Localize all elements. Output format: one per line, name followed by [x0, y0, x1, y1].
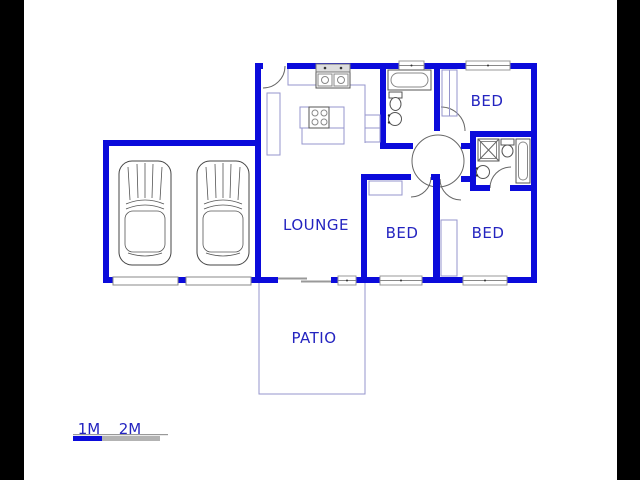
scale-1m-label: 1M [74, 420, 104, 438]
garage-top-wall [103, 140, 261, 146]
ensuite-bottom-wall-left [470, 185, 490, 191]
bed1-label: BED [462, 93, 512, 109]
bed3-closet [441, 220, 457, 276]
toilet-icon [501, 139, 514, 157]
ensuite-top-wall [470, 131, 537, 137]
garage-door-right [186, 277, 251, 285]
left-outer-wall [255, 63, 261, 283]
garage-door-left [113, 277, 178, 285]
bed2-top-wall [361, 174, 411, 180]
bed2-bed3-divider-wall [433, 174, 440, 283]
bed2-door-arc [411, 177, 431, 197]
kitchen-fixtures [267, 64, 380, 155]
car-icon [197, 161, 249, 265]
scale-2m-label: 2M [115, 420, 145, 438]
shower-icon [478, 139, 499, 161]
bath1-bottom-wall [380, 143, 413, 149]
entry-door-arc [263, 66, 285, 88]
kitchen-bath-divider-wall [380, 63, 386, 149]
letterbox-right [617, 0, 640, 480]
bathroom-ensuite-fixtures [476, 139, 530, 183]
bed3-label: BED [463, 225, 513, 241]
bath1-bed1-divider-wall [434, 63, 440, 131]
window-bed1 [466, 61, 510, 70]
bathtub-icon [388, 70, 431, 90]
right-outer-wall [531, 63, 537, 283]
bed2-label: BED [377, 225, 427, 241]
bed1-door-arc [441, 107, 465, 131]
bathtub-icon [516, 139, 530, 183]
basin-icon [476, 166, 490, 179]
lounge-label: LOUNGE [266, 217, 366, 233]
kitchen-cupboard [267, 93, 280, 155]
kitchen-island-extension [302, 128, 344, 144]
ensuite-door-arc [490, 167, 511, 188]
car-icon [119, 161, 171, 265]
kitchen-sink-icon [316, 64, 350, 88]
floorplan-viewer: LOUNGE BED BED BED PATIO 1M 2M [0, 0, 640, 480]
window-lounge [338, 276, 356, 285]
bed2-closet [369, 181, 402, 195]
stove-icon [309, 107, 329, 128]
letterbox-left [0, 0, 24, 480]
ensuite-left-wall [470, 131, 476, 191]
window-bath1 [399, 61, 424, 70]
patio-label: PATIO [289, 330, 339, 346]
ensuite-bottom-wall-right [510, 185, 537, 191]
basin-icon [388, 113, 402, 126]
bathroom-main-fixtures [388, 70, 431, 126]
garage-left-wall [103, 140, 109, 283]
window-bed2 [380, 276, 422, 285]
window-bed3 [463, 276, 507, 285]
bed3-door-arc [440, 179, 461, 200]
floorplan-drawing [0, 0, 640, 480]
toilet-icon [389, 92, 402, 111]
